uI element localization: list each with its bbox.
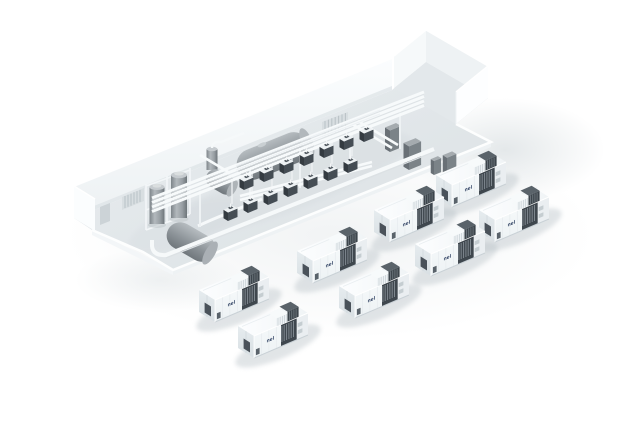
isometric-scene: nel nel nel nel nel nel — [0, 0, 640, 427]
plant-render: nel nel nel nel nel nel — [0, 0, 640, 427]
electrical-cabinet — [431, 156, 441, 175]
